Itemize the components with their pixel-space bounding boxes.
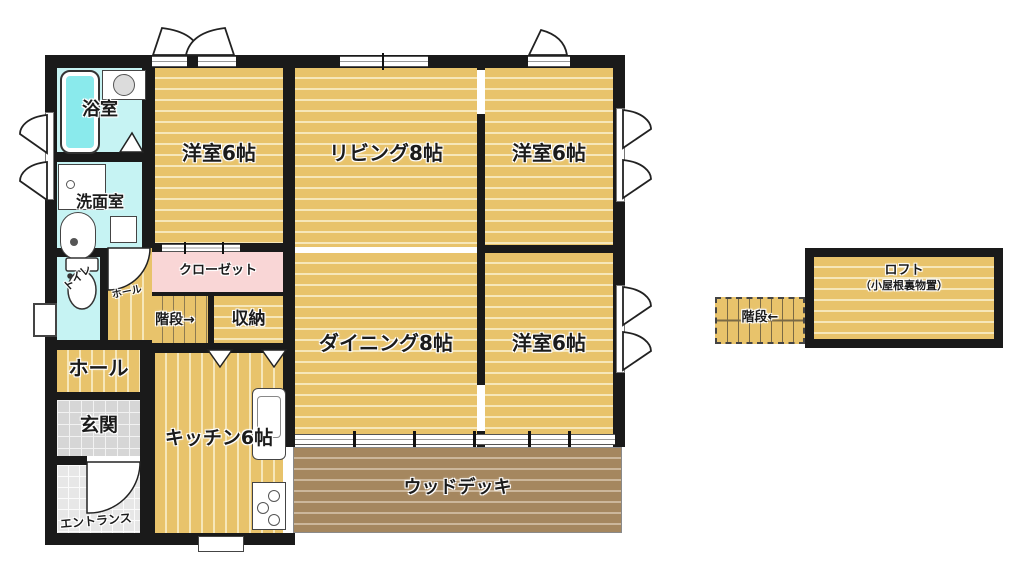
label-wood-deck: ウッドデッキ [293, 478, 622, 499]
wash-basin [60, 212, 96, 260]
sliding-door-deck [295, 434, 615, 445]
window-top-right [528, 56, 570, 67]
door-opening-living [477, 70, 485, 114]
window-right-wall-bottom [616, 285, 625, 373]
window-tick [528, 431, 531, 447]
basin-drain-icon [70, 238, 78, 246]
wall-western-rooms-divider [477, 245, 625, 253]
exterior-box [33, 303, 57, 337]
label-living: リビング8帖 [295, 142, 477, 165]
wall-bottom-left [45, 533, 295, 545]
washroom-cabinet [110, 216, 137, 243]
label-western-top-left: 洋室6帖 [155, 142, 283, 165]
closet-sliding-door [162, 244, 240, 252]
entry-step [198, 536, 244, 552]
vanity-faucet-icon [66, 180, 75, 189]
window-tick [413, 431, 416, 447]
label-genkan: 玄関 [62, 415, 136, 437]
wall-hall-genkan [45, 392, 152, 400]
label-stairs-down: 階段← [715, 311, 805, 326]
label-dining: ダイニング8帖 [295, 332, 477, 355]
label-loft-sub: （小屋根裏物置） [814, 280, 994, 293]
stove-burner-icon [268, 514, 280, 526]
window-tick [568, 431, 571, 447]
window-left-wall [45, 112, 54, 200]
wall-hall-top [45, 340, 152, 350]
floor-plan: 浴室 洗面室 トイレ ホール クローゼット 階段→ 収納 ホール 玄関 エントラ… [0, 0, 1024, 582]
stove-burner-icon [257, 502, 269, 514]
wall-genkan-entrance [45, 456, 87, 465]
label-western-bottom-right: 洋室6帖 [485, 332, 613, 355]
stove-burner-icon [268, 490, 280, 502]
label-closet: クローゼット [160, 264, 276, 279]
label-western-top-right: 洋室6帖 [485, 142, 613, 165]
window-tick [382, 53, 384, 70]
window-tick [184, 242, 186, 254]
door-opening-dining [477, 385, 485, 431]
window-tick [353, 431, 356, 447]
label-stairs-up: 階段→ [143, 312, 207, 328]
window-tick [222, 242, 224, 254]
label-loft: ロフト [814, 264, 994, 279]
window-living-top [340, 56, 428, 67]
label-washroom: 洗面室 [54, 193, 146, 211]
label-storage: 収納 [214, 310, 283, 330]
window-tick [473, 431, 476, 447]
wall-kitchen-top [140, 343, 295, 353]
label-kitchen: キッチン6帖 [155, 428, 283, 450]
window-right-wall-top [616, 108, 625, 202]
label-hall: ホール [57, 357, 140, 380]
window-top-left-mullion [187, 55, 198, 68]
washer-drum-icon [113, 74, 135, 96]
label-bathroom: 浴室 [60, 100, 140, 121]
wall-bath-washroom [45, 152, 152, 162]
